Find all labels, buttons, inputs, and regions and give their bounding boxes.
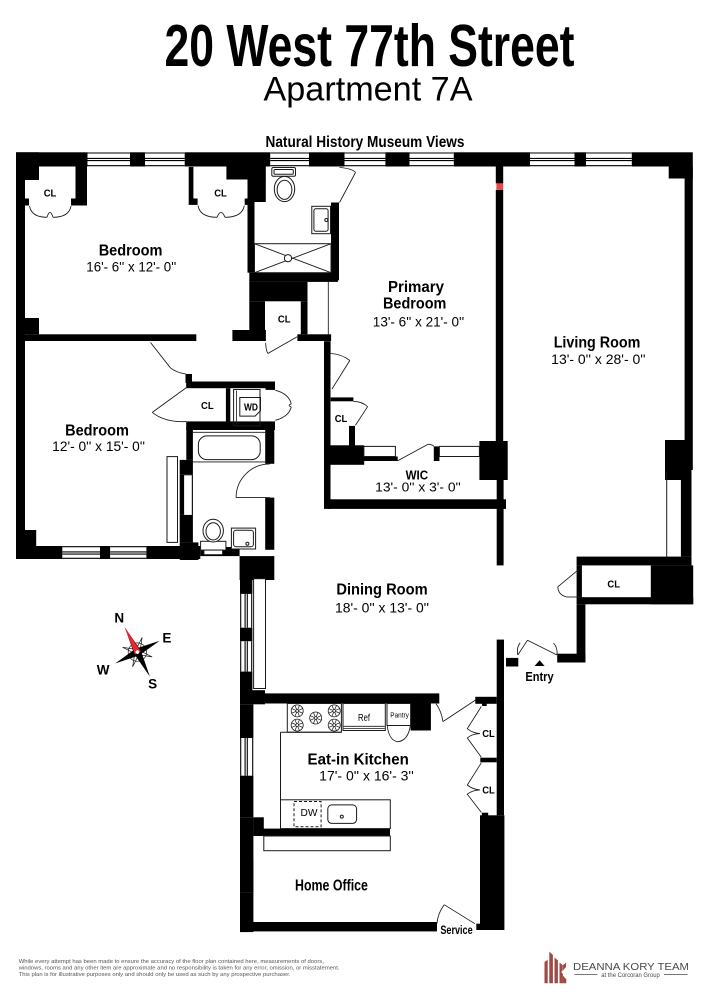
svg-text:13'- 0'' x 28'- 0'': 13'- 0'' x 28'- 0'' bbox=[551, 352, 645, 367]
svg-text:This plan is for illustrative: This plan is for illustrative purposes o… bbox=[19, 972, 291, 978]
svg-text:CL: CL bbox=[44, 188, 57, 200]
svg-text:Eat-in Kitchen: Eat-in Kitchen bbox=[308, 752, 409, 769]
svg-text:Bedroom: Bedroom bbox=[65, 423, 129, 440]
svg-text:16'- 6'' x 12'- 0'': 16'- 6'' x 12'- 0'' bbox=[86, 260, 176, 275]
svg-text:CL: CL bbox=[482, 728, 495, 740]
svg-text:N: N bbox=[114, 611, 124, 626]
svg-text:18'- 0'' x 13'- 0'': 18'- 0'' x 13'- 0'' bbox=[335, 601, 429, 616]
svg-text:20 West 77th Street: 20 West 77th Street bbox=[165, 13, 575, 79]
svg-text:13'- 6'' x 21'- 0'': 13'- 6'' x 21'- 0'' bbox=[373, 315, 464, 330]
svg-text:CL: CL bbox=[201, 400, 214, 412]
svg-text:Pantry: Pantry bbox=[390, 713, 409, 720]
svg-text:12'- 0'' x 15'- 0'': 12'- 0'' x 15'- 0'' bbox=[52, 439, 145, 454]
svg-text:at the Corcoran Group: at the Corcoran Group bbox=[601, 972, 660, 979]
svg-text:W: W bbox=[97, 663, 110, 678]
svg-text:17'- 0'' x 16'- 3'': 17'- 0'' x 16'- 3'' bbox=[319, 769, 414, 784]
svg-text:CL: CL bbox=[278, 314, 291, 326]
svg-text:WD: WD bbox=[244, 403, 258, 414]
svg-text:Natural History Museum Views: Natural History Museum Views bbox=[266, 134, 465, 151]
svg-text:CL: CL bbox=[482, 785, 495, 797]
svg-text:DW: DW bbox=[301, 807, 318, 819]
svg-text:CL: CL bbox=[214, 188, 227, 200]
svg-text:Primary: Primary bbox=[388, 279, 444, 296]
svg-text:Living Room: Living Room bbox=[554, 334, 641, 351]
svg-text:CL: CL bbox=[335, 413, 348, 425]
svg-text:Home Office: Home Office bbox=[295, 878, 368, 895]
svg-text:windows, rooms and any other i: windows, rooms and any other item are ap… bbox=[18, 966, 340, 972]
svg-text:E: E bbox=[162, 631, 171, 646]
svg-text:Service: Service bbox=[440, 923, 473, 937]
svg-text:Bedroom: Bedroom bbox=[383, 296, 446, 313]
svg-text:CL: CL bbox=[607, 579, 620, 591]
svg-text:Entry: Entry bbox=[525, 669, 554, 684]
svg-text:13'- 0'' x 3'- 0'': 13'- 0'' x 3'- 0'' bbox=[375, 481, 461, 495]
svg-text:Apartment 7A: Apartment 7A bbox=[264, 71, 473, 109]
svg-text:Dining Room: Dining Room bbox=[336, 582, 427, 599]
svg-text:S: S bbox=[148, 677, 157, 692]
svg-text:Ref: Ref bbox=[358, 713, 370, 724]
svg-text:Bedroom: Bedroom bbox=[99, 243, 163, 260]
svg-text:While every attempt has been m: While every attempt has been made to ens… bbox=[19, 959, 325, 965]
